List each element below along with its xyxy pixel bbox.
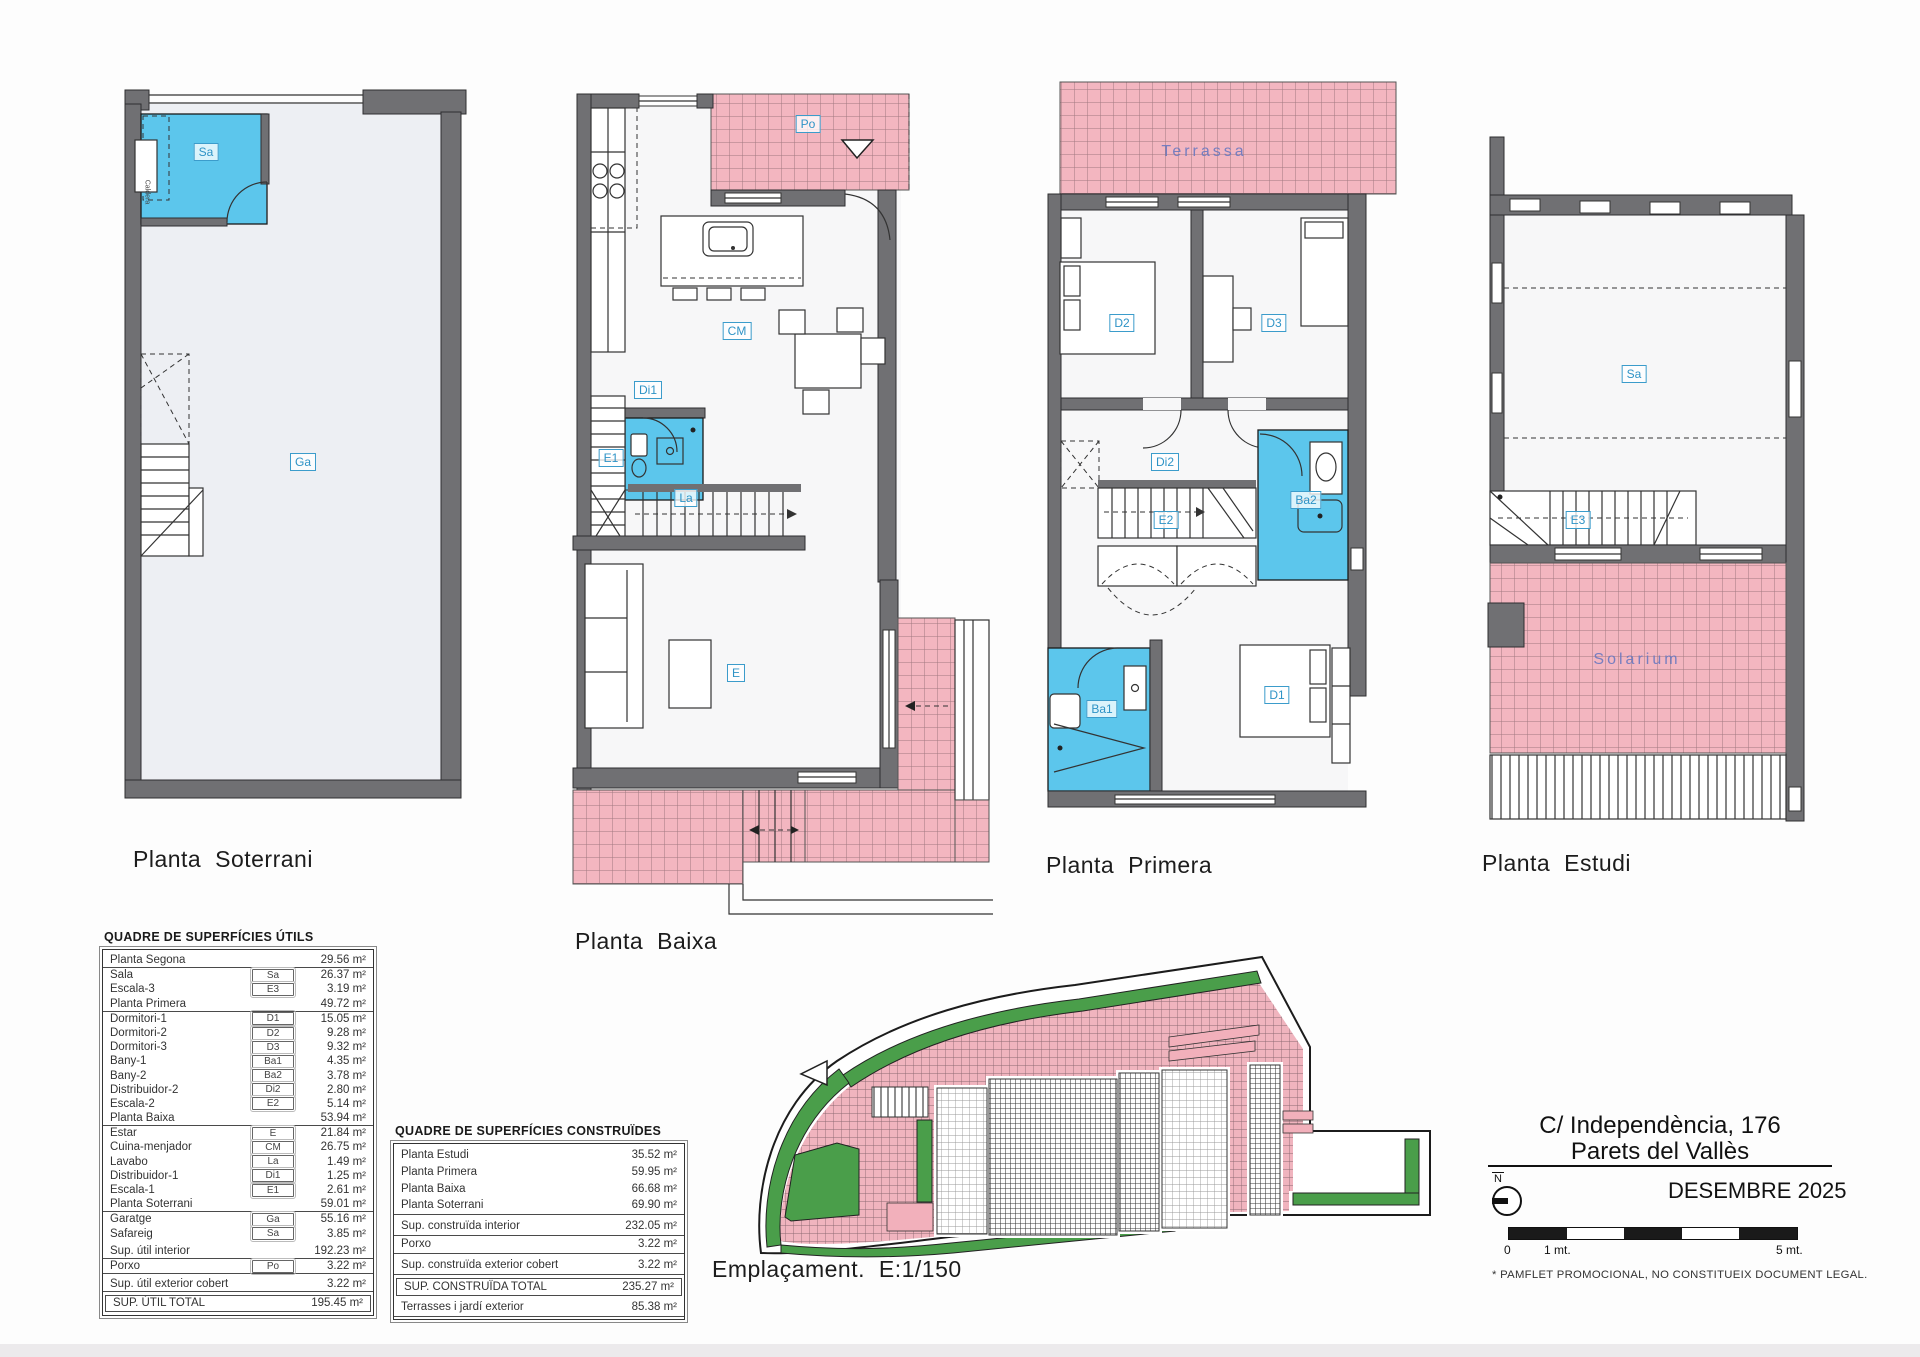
table-row: SUP. CONSTRUÏDA TOTAL235.27 m² [396, 1278, 682, 1297]
floorplan-pamphlet: Sa Ga Caldera Po CM Di1 La E1 E Terrassa… [0, 0, 1920, 1357]
title-planta-soterrani: Planta Soterrani [133, 846, 313, 873]
title-emplacament: Emplaçament. E:1/150 [712, 1256, 962, 1283]
scale-five-mt: 5 mt. [1776, 1243, 1803, 1257]
floorplan-soterrani-drawing [123, 88, 468, 816]
table-row: Planta Baixa66.68 m² [394, 1181, 684, 1198]
table-row: Terrasses i jardí exterior85.38 m² [394, 1299, 684, 1317]
table-row: Sup. construïda exterior cobert3.22 m² [394, 1257, 684, 1275]
table-row: Escala-3E33.19 m² [103, 982, 373, 996]
room-label-escala-2: E2 [1154, 511, 1179, 529]
room-label-safareig: Sa [194, 143, 219, 161]
table-row: SUP. ÚTIL TOTAL195.45 m² [105, 1295, 371, 1311]
table-row: Distribuidor-1Di11.25 m² [103, 1169, 373, 1183]
date-label: DESEMBRE 2025 [1668, 1178, 1847, 1204]
room-label-distribuidor-1: Di1 [634, 381, 662, 399]
table-row: Planta Estudi35.52 m² [394, 1147, 684, 1164]
table-row: Sup. útil exterior cobert3.22 m² [103, 1277, 373, 1292]
table-row: Dormitori-2D29.28 m² [103, 1026, 373, 1040]
table-row: Sup. construïda interior232.05 m² [394, 1218, 684, 1236]
scale-bar [1508, 1227, 1798, 1240]
divider-line [1488, 1165, 1832, 1167]
table-row: Bany-1Ba14.35 m² [103, 1054, 373, 1068]
table-row: Escala-1E12.61 m² [103, 1183, 373, 1197]
table-row: Distribuidor-2Di22.80 m² [103, 1083, 373, 1097]
table-row: Porxo3.22 m² [394, 1236, 684, 1254]
table-superficies-construides: QUADRE DE SUPERFÍCIES CONSTRUÏDES Planta… [393, 1124, 685, 1320]
room-label-dormitori-2: D2 [1109, 314, 1134, 332]
room-label-escala-3: E3 [1566, 511, 1591, 529]
table-row: Bany-2Ba23.78 m² [103, 1069, 373, 1083]
floorplan-estudi-drawing [1488, 123, 1820, 829]
table-row: Planta Soterrani69.90 m² [394, 1197, 684, 1215]
table-row: Dormitori-1D115.05 m² [103, 1012, 373, 1026]
garden-patch [785, 1143, 859, 1221]
room-label-dormitori-3: D3 [1261, 314, 1286, 332]
room-label-garatge: Ga [290, 453, 316, 471]
disclaimer-text: * PAMFLET PROMOCIONAL, NO CONSTITUEIX DO… [1492, 1269, 1868, 1281]
table-utils-body: Planta Segona29.56 m²SalaSa26.37 m²Escal… [102, 949, 374, 1316]
scan-edge [0, 1344, 1920, 1357]
table-row: LavaboLa1.49 m² [103, 1155, 373, 1169]
title-planta-baixa: Planta Baixa [575, 928, 717, 955]
room-label-dormitori-1: D1 [1264, 686, 1289, 704]
room-label-sala: Sa [1622, 365, 1647, 383]
room-label-bany-1: Ba1 [1086, 700, 1117, 718]
table-row: Planta Soterrani59.01 m² [103, 1197, 373, 1212]
area-label-solarium: Solarium [1589, 650, 1684, 670]
room-label-caldera: Caldera [140, 178, 155, 207]
room-label-lavabo: La [674, 489, 697, 507]
table-row: Escala-2E25.14 m² [103, 1097, 373, 1111]
address-line-2: Parets del Vallès [1500, 1138, 1820, 1166]
table-row: Cuina-menjadorCM26.75 m² [103, 1140, 373, 1154]
room-label-estar: E [727, 664, 745, 682]
room-label-porxo: Po [796, 115, 821, 133]
room-label-distribuidor-2: Di2 [1151, 453, 1179, 471]
table-superficies-utils: QUADRE DE SUPERFÍCIES ÚTILS Planta Segon… [102, 930, 374, 1316]
table-utils-title: QUADRE DE SUPERFÍCIES ÚTILS [104, 930, 374, 944]
table-row: Dormitori-3D39.32 m² [103, 1040, 373, 1054]
table-row: EstarE21.84 m² [103, 1126, 373, 1140]
room-label-bany-2: Ba2 [1290, 491, 1321, 509]
room-label-escala-1: E1 [599, 449, 624, 467]
scale-one-mt: 1 mt. [1544, 1243, 1571, 1257]
room-label-cuina-menjador: CM [723, 322, 752, 340]
table-row: SalaSa26.37 m² [103, 968, 373, 982]
siteplan-drawing [745, 953, 1487, 1303]
table-row: Planta Primera59.95 m² [394, 1164, 684, 1181]
north-arrow-icon [1488, 1184, 1528, 1222]
estudi-solarium [1488, 563, 1786, 819]
title-planta-primera: Planta Primera [1046, 852, 1212, 879]
table-row: PorxoPo3.22 m² [103, 1259, 373, 1274]
scale-zero: 0 [1504, 1243, 1511, 1257]
soterrani-safareig-room [135, 114, 269, 226]
table-row: SafareigSa3.85 m² [103, 1227, 373, 1241]
table-row: Planta Primera49.72 m² [103, 997, 373, 1012]
area-label-terrassa: Terrassa [1157, 142, 1250, 162]
floorplan-baixa-drawing [573, 90, 1021, 916]
table-row: GaratgeGa55.16 m² [103, 1212, 373, 1226]
table-row: Sup. útil interior192.23 m² [103, 1244, 373, 1259]
address-line-1: C/ Independència, 176 [1500, 1112, 1820, 1140]
table-construides-title: QUADRE DE SUPERFÍCIES CONSTRUÏDES [395, 1124, 685, 1138]
table-construides-body: Planta Estudi35.52 m²Planta Primera59.95… [393, 1143, 685, 1320]
table-row: Planta Segona29.56 m² [103, 953, 373, 968]
table-row: Planta Baixa53.94 m² [103, 1111, 373, 1126]
title-planta-estudi: Planta Estudi [1482, 850, 1631, 877]
